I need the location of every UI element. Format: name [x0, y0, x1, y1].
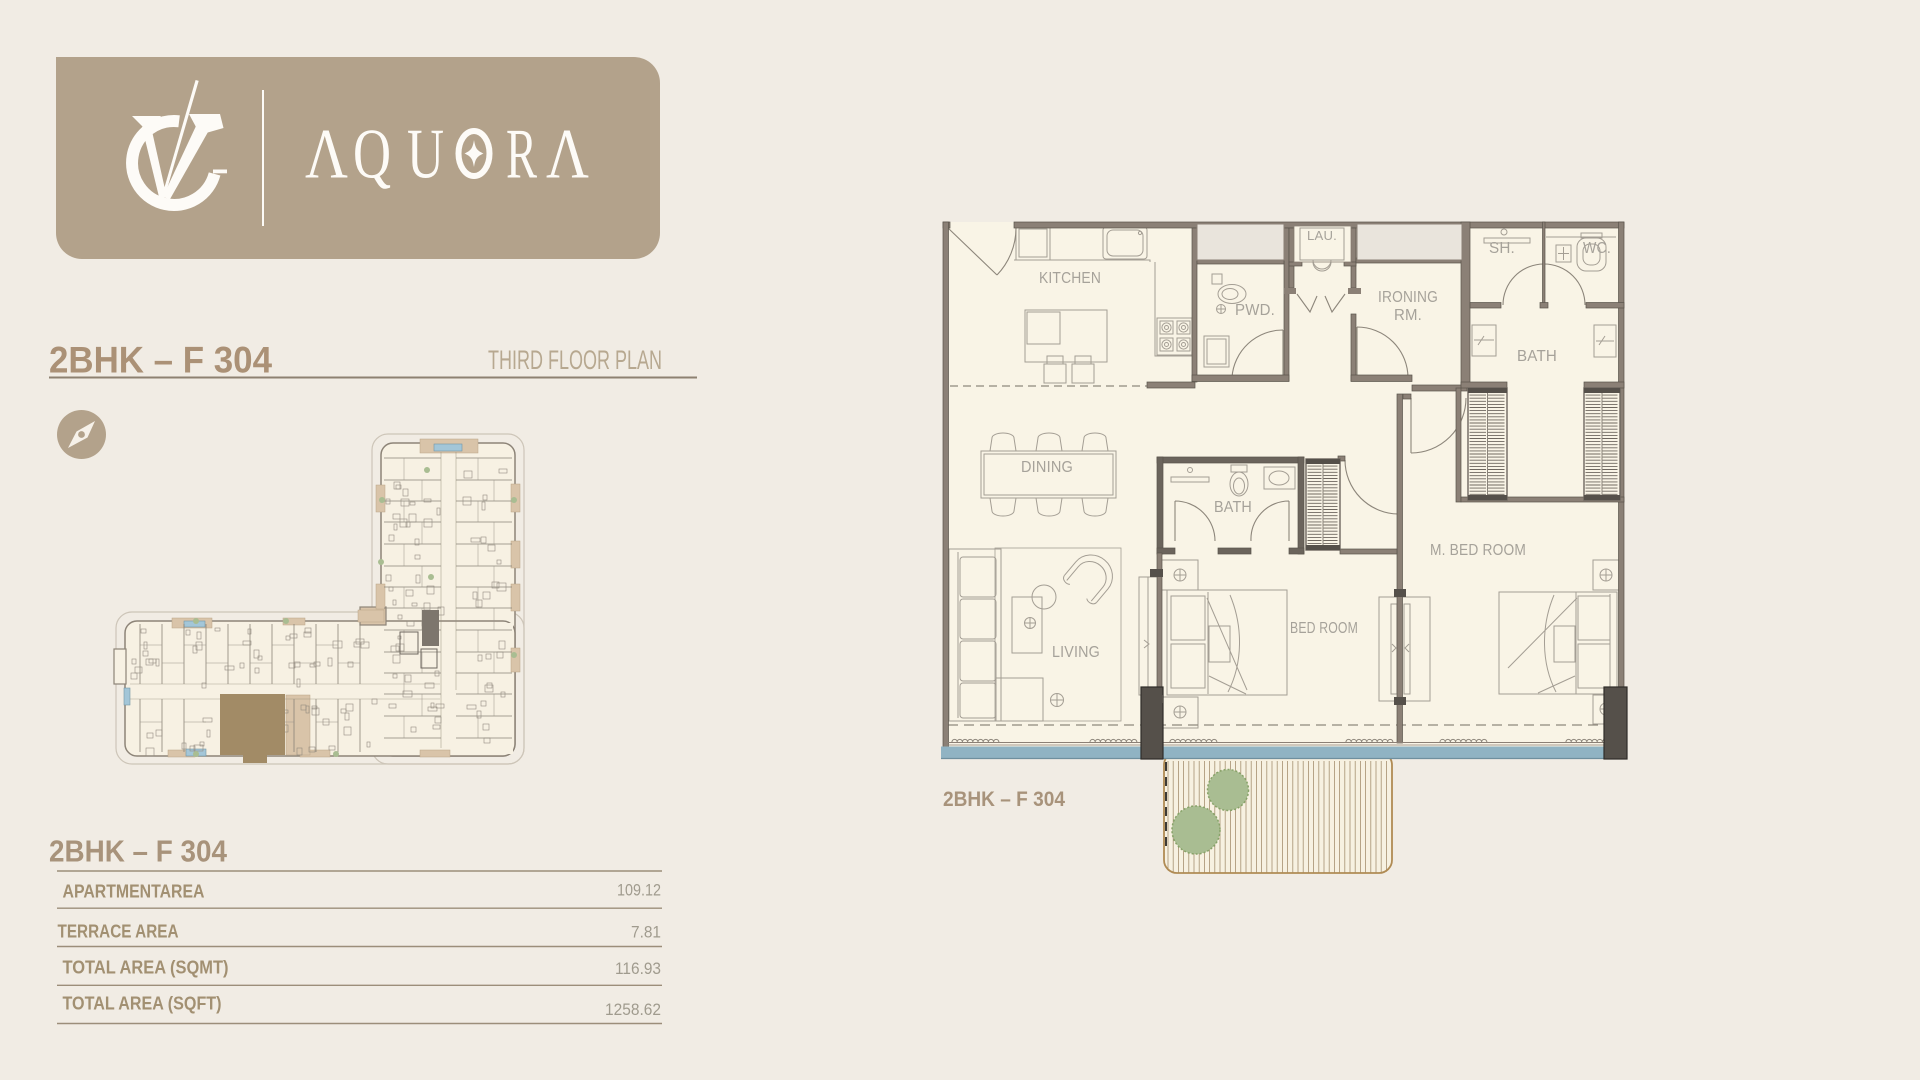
svg-text:TOTAL AREA (SQMT): TOTAL AREA (SQMT): [63, 957, 229, 978]
svg-text:TERRACE AREA: TERRACE AREA: [58, 921, 179, 942]
svg-text:7.81: 7.81: [631, 923, 661, 942]
svg-text:2BHK – F 304: 2BHK – F 304: [943, 788, 1065, 811]
svg-text:TOTAL AREA (SQFT): TOTAL AREA (SQFT): [63, 993, 222, 1014]
svg-text:THIRD FLOOR PLAN: THIRD FLOOR PLAN: [488, 345, 662, 375]
svg-text:116.93: 116.93: [615, 959, 661, 978]
svg-text:2BHK – F 304: 2BHK – F 304: [49, 834, 228, 869]
svg-text:1258.62: 1258.62: [605, 1000, 661, 1019]
svg-text:2BHK – F 304: 2BHK – F 304: [49, 340, 272, 381]
svg-text:109.12: 109.12: [617, 881, 661, 900]
svg-text:APARTMENTAREA: APARTMENTAREA: [63, 881, 205, 902]
